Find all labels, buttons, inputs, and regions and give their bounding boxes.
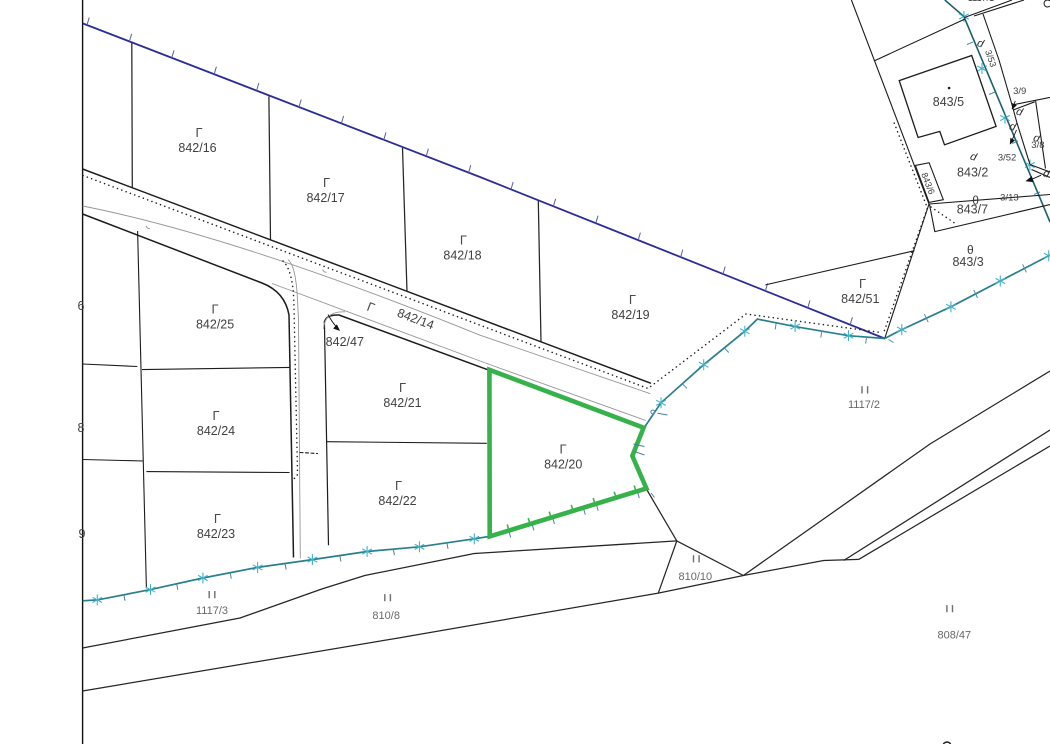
svg-text:808/47: 808/47 bbox=[937, 630, 971, 642]
svg-text:3/13: 3/13 bbox=[1000, 192, 1019, 203]
svg-text:843/3: 843/3 bbox=[952, 255, 983, 269]
svg-text:1117/1: 1117/1 bbox=[968, 0, 994, 3]
svg-text:843/2: 843/2 bbox=[957, 166, 988, 180]
svg-text:Γ: Γ bbox=[195, 125, 202, 140]
svg-text:Γ: Γ bbox=[323, 175, 330, 190]
svg-text:Γ: Γ bbox=[212, 408, 219, 423]
svg-text:810/10: 810/10 bbox=[678, 571, 712, 583]
svg-text:θ: θ bbox=[967, 243, 974, 257]
svg-text:3/52: 3/52 bbox=[998, 152, 1017, 163]
svg-text:842/16: 842/16 bbox=[178, 141, 216, 155]
svg-text:842/20: 842/20 bbox=[544, 457, 582, 471]
svg-text:842/24: 842/24 bbox=[197, 424, 235, 438]
svg-text:842/51: 842/51 bbox=[841, 292, 879, 306]
svg-text:Γ: Γ bbox=[559, 442, 566, 457]
svg-text:Γ: Γ bbox=[214, 511, 221, 526]
svg-text:3/9: 3/9 bbox=[1013, 86, 1026, 97]
svg-text:842/21: 842/21 bbox=[383, 396, 421, 410]
svg-text:843/5: 843/5 bbox=[933, 95, 964, 109]
svg-text:842/18: 842/18 bbox=[443, 249, 481, 263]
svg-text:810/8: 810/8 bbox=[372, 610, 400, 622]
svg-text:842/23: 842/23 bbox=[197, 527, 235, 541]
svg-text:Γ: Γ bbox=[859, 276, 866, 291]
svg-text:8: 8 bbox=[78, 421, 85, 435]
svg-text:Γ: Γ bbox=[399, 380, 406, 395]
svg-text:842/22: 842/22 bbox=[378, 494, 416, 508]
svg-text:9: 9 bbox=[79, 527, 86, 541]
svg-text:θ: θ bbox=[972, 194, 979, 208]
svg-text:1117/3: 1117/3 bbox=[196, 605, 228, 617]
svg-text:Γ: Γ bbox=[395, 478, 402, 493]
svg-text:842/25: 842/25 bbox=[196, 318, 234, 332]
svg-text:Γ: Γ bbox=[212, 302, 219, 317]
svg-text:Γ: Γ bbox=[460, 233, 467, 248]
svg-text:Γ: Γ bbox=[629, 292, 636, 307]
svg-text:1117/2: 1117/2 bbox=[848, 399, 880, 411]
svg-text:842/19: 842/19 bbox=[611, 308, 649, 322]
svg-text:842/17: 842/17 bbox=[306, 191, 344, 205]
svg-text:842/47: 842/47 bbox=[326, 335, 364, 349]
svg-text:6: 6 bbox=[78, 299, 85, 313]
